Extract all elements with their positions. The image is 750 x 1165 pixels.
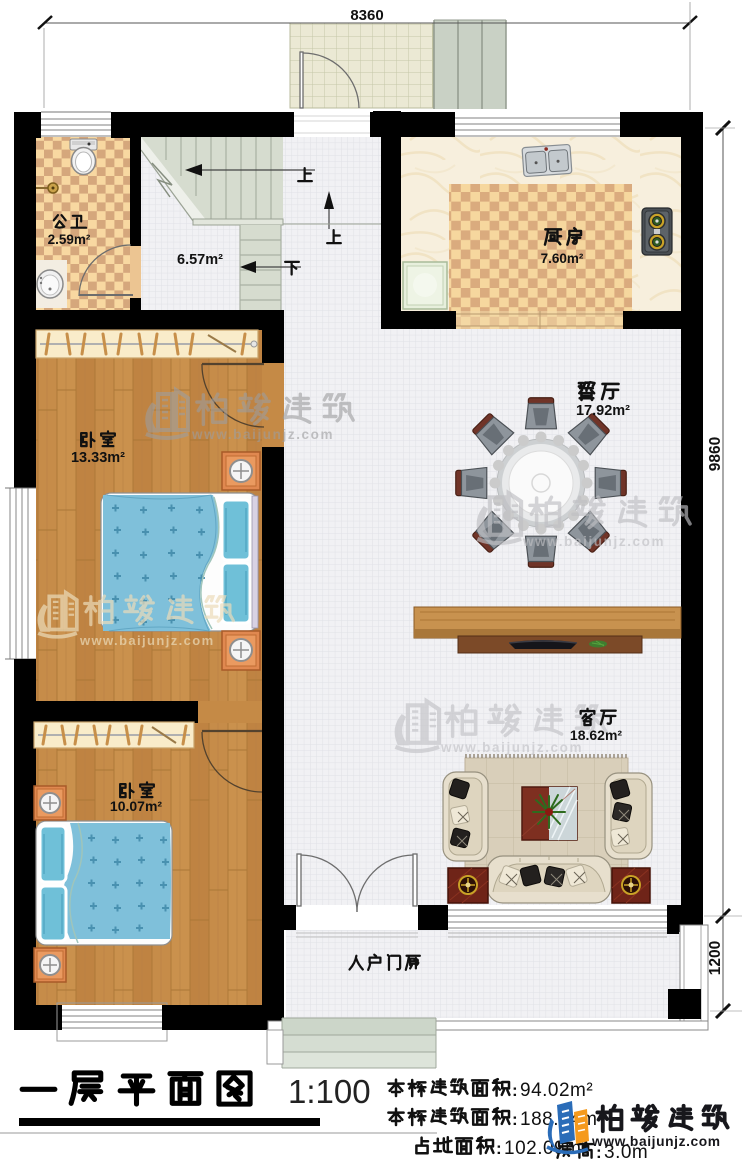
svg-text::: : <box>496 1139 502 1158</box>
svg-text:13.33m²: 13.33m² <box>71 450 125 466</box>
svg-text:102.09m²: 102.09m² <box>504 1138 588 1159</box>
svg-text:18.62m²: 18.62m² <box>570 727 622 743</box>
svg-text:www.baijunjz.com: www.baijunjz.com <box>591 1134 721 1149</box>
svg-text:94.02m²: 94.02m² <box>520 1080 593 1101</box>
svg-text::: : <box>512 1110 518 1129</box>
svg-text::: : <box>512 1081 518 1100</box>
svg-text:www.baijunjz.com: www.baijunjz.com <box>522 534 665 549</box>
svg-text:9860: 9860 <box>707 437 724 471</box>
svg-text:7.60m²: 7.60m² <box>541 251 584 266</box>
svg-text:10.07m²: 10.07m² <box>110 798 162 814</box>
svg-text:8360: 8360 <box>350 7 383 24</box>
svg-text:2.59m²: 2.59m² <box>48 232 91 247</box>
svg-text:6.57m²: 6.57m² <box>177 252 223 268</box>
svg-text:1:100: 1:100 <box>288 1073 371 1110</box>
svg-text:17.92m²: 17.92m² <box>576 403 630 419</box>
svg-text:www.baijunjz.com: www.baijunjz.com <box>79 633 215 648</box>
svg-text:1200: 1200 <box>707 941 724 975</box>
svg-text:www.baijunjz.com: www.baijunjz.com <box>191 427 334 442</box>
svg-text:www.baijunjz.com: www.baijunjz.com <box>440 740 583 755</box>
